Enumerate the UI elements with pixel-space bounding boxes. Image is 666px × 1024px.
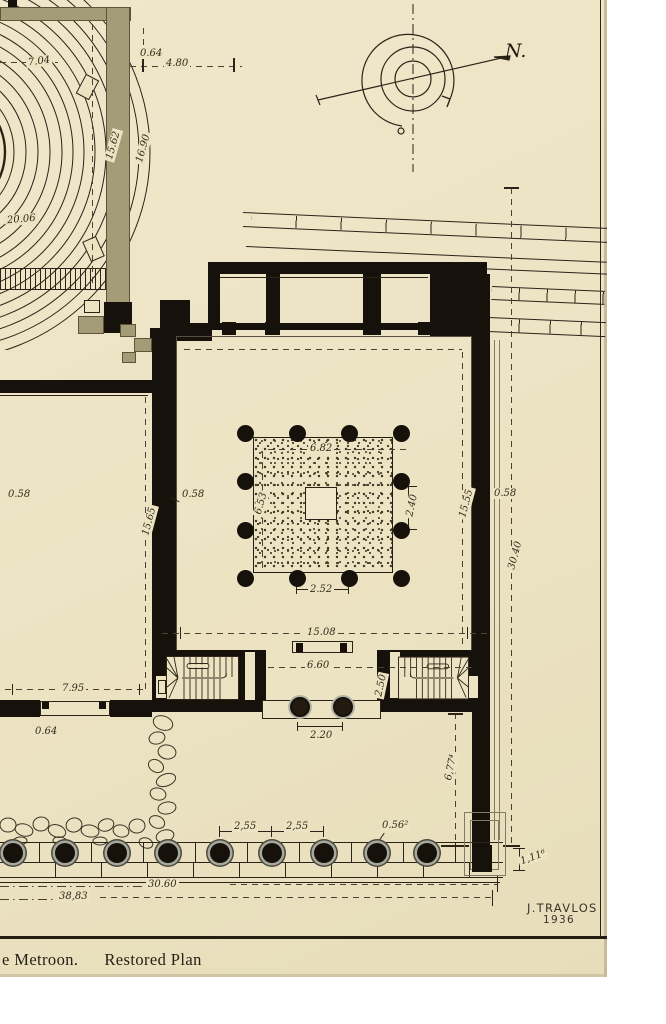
old-temple-fragment xyxy=(134,338,152,352)
block-course-top xyxy=(251,214,597,241)
door-jamb-nub xyxy=(99,702,106,709)
dim-label-677: 6,77⁴ xyxy=(443,752,460,784)
column-dot xyxy=(237,473,254,490)
left-room-inner-line xyxy=(0,395,148,396)
porch-platform xyxy=(262,700,381,719)
tick xyxy=(219,826,220,837)
dim-label-3040: 30.40 xyxy=(506,538,525,572)
pier-stub xyxy=(222,322,236,335)
dim-label-1508: 15.08 xyxy=(305,627,338,638)
old-temple-fragment xyxy=(122,352,136,363)
sheet-border-right xyxy=(600,0,601,936)
tick xyxy=(513,848,525,849)
stoa-column xyxy=(3,843,23,863)
tick xyxy=(271,826,272,837)
column-dot xyxy=(341,570,358,587)
tick xyxy=(297,722,298,731)
tick xyxy=(12,684,13,695)
dim-label-056: 0.56² xyxy=(380,820,410,831)
dim-line-220 xyxy=(298,726,343,727)
dim-label-252: 2.52 xyxy=(308,584,334,595)
caption-right: Restored Plan xyxy=(104,950,201,969)
column-dot xyxy=(393,473,410,490)
north-arrow xyxy=(298,0,538,180)
porch-column xyxy=(333,697,353,717)
altar-inner-socket xyxy=(305,487,337,520)
pier-stub xyxy=(363,322,381,335)
dim-label-064-door: 0.64 xyxy=(33,726,59,737)
north-porch-partition-2 xyxy=(363,262,381,324)
tick xyxy=(342,722,343,731)
dim-line-682 xyxy=(268,449,408,450)
stoa-column xyxy=(314,843,334,863)
dim-line-3060-right xyxy=(230,884,497,885)
dim-line-3040 xyxy=(511,188,512,845)
dim-label-111: 1,11⁶ xyxy=(517,847,549,868)
tick xyxy=(142,58,144,72)
staircase-east xyxy=(398,656,469,700)
door-jamb-nub xyxy=(42,702,49,709)
sheet-border-bottom xyxy=(0,936,607,939)
stoa-column xyxy=(107,843,127,863)
north-label: N. xyxy=(505,40,526,62)
column-dot xyxy=(289,570,306,587)
staircase-west xyxy=(166,656,239,700)
left-room-north-wall xyxy=(0,380,140,393)
block-course-right-2 xyxy=(488,317,606,337)
theater-seat-hatch xyxy=(0,268,106,290)
dim-label-255-b: 2,55 xyxy=(284,821,310,832)
road-line xyxy=(246,246,607,263)
foundation-line xyxy=(0,882,500,883)
tick xyxy=(323,826,324,837)
stoa-column xyxy=(367,843,387,863)
dim-label-480: 4.80 xyxy=(164,58,190,69)
dim-label-795: 7.95 xyxy=(60,683,86,694)
dim-label-058-cella: 0.58 xyxy=(180,489,206,500)
old-temple-fragment xyxy=(120,324,136,337)
threshold-nub xyxy=(340,643,347,652)
porch-inner-line xyxy=(220,277,428,278)
porch-column xyxy=(290,697,310,717)
dim-line-3060-left xyxy=(0,886,142,887)
signature-name: J.TRAVLOS xyxy=(527,901,598,915)
left-room-wall-connector xyxy=(130,380,154,393)
dim-label-3883: 38,83 xyxy=(57,891,90,902)
theater-connector-wall xyxy=(160,300,190,332)
east-wall-face-line xyxy=(499,340,500,840)
theater-south-olive xyxy=(78,316,104,334)
dim-label-058-right: 0.58 xyxy=(492,488,518,499)
pier-stub xyxy=(418,322,430,335)
dim-label-255-a: 2,55 xyxy=(232,821,258,832)
column-dot xyxy=(393,522,410,539)
threshold-nub xyxy=(296,643,303,652)
dim-line-660 xyxy=(268,667,473,668)
stoa-column xyxy=(158,843,178,863)
column-dot xyxy=(289,425,306,442)
tick xyxy=(233,58,235,72)
euthynteria-blocks xyxy=(0,863,503,878)
cella-east-wall xyxy=(472,274,490,845)
pier-stub xyxy=(265,322,280,335)
signature-year: 1936 xyxy=(543,914,575,926)
tick xyxy=(448,713,463,715)
dim-label-660: 6.60 xyxy=(305,660,331,671)
dim-line-3883-left xyxy=(0,899,54,900)
column-dot xyxy=(237,522,254,539)
dim-label-682: 6.82 xyxy=(308,443,334,454)
north-porch-wall-left xyxy=(208,262,220,324)
tick xyxy=(139,684,140,695)
dim-line-3883-right xyxy=(100,897,492,898)
stair-slot-east xyxy=(468,676,478,698)
rubble-wall xyxy=(0,712,190,852)
scanned-plan-sheet: 7.04 0.64 4.80 15.62 16.90 20.06 N. 30.4… xyxy=(0,0,666,1024)
tick xyxy=(513,870,525,871)
tick xyxy=(492,890,493,906)
paper: 7.04 0.64 4.80 15.62 16.90 20.06 N. 30.4… xyxy=(0,0,607,977)
column-dot xyxy=(237,570,254,587)
column-dot xyxy=(393,425,410,442)
stair-slot-box xyxy=(158,680,166,694)
dim-line-677 xyxy=(455,713,456,846)
dim-label-3060: 30.60 xyxy=(146,879,179,890)
passage-west xyxy=(245,652,255,700)
dim-label-220: 2.20 xyxy=(308,730,334,741)
east-wall-face-line xyxy=(494,340,495,840)
tick xyxy=(497,876,498,892)
tick xyxy=(467,627,468,639)
column-dot xyxy=(237,425,254,442)
column-dot xyxy=(393,570,410,587)
anta-pier xyxy=(472,845,492,872)
dim-label-064-top: 0.64 xyxy=(138,48,164,59)
theater-threshold xyxy=(84,300,100,313)
stoa-column xyxy=(210,843,230,863)
column-dot xyxy=(341,425,358,442)
caption: e Metroon.Restored Plan xyxy=(2,950,202,970)
stoa-column xyxy=(262,843,282,863)
theater-axis-dashed xyxy=(92,24,93,286)
cella-dashed-top xyxy=(184,349,462,350)
stoa-column xyxy=(417,843,437,863)
tick xyxy=(180,627,181,639)
north-porch-partition-1 xyxy=(266,262,280,324)
block-course-right-1 xyxy=(491,286,605,305)
stoa-column xyxy=(55,843,75,863)
dim-line-1565 xyxy=(145,397,146,690)
dim-label-058-leftedge: 0.58 xyxy=(6,489,32,500)
caption-left: e Metroon. xyxy=(2,950,78,969)
